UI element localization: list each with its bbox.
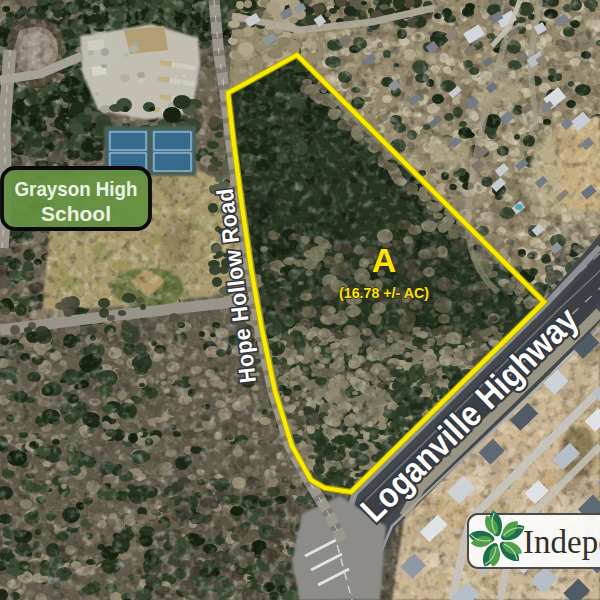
svg-text:A: A xyxy=(372,241,397,279)
svg-text:(16.78 +/- AC): (16.78 +/- AC) xyxy=(339,284,429,301)
svg-text:School: School xyxy=(41,202,111,225)
svg-text:Independence: Independence xyxy=(523,524,600,560)
svg-text:Grayson High: Grayson High xyxy=(15,177,138,200)
